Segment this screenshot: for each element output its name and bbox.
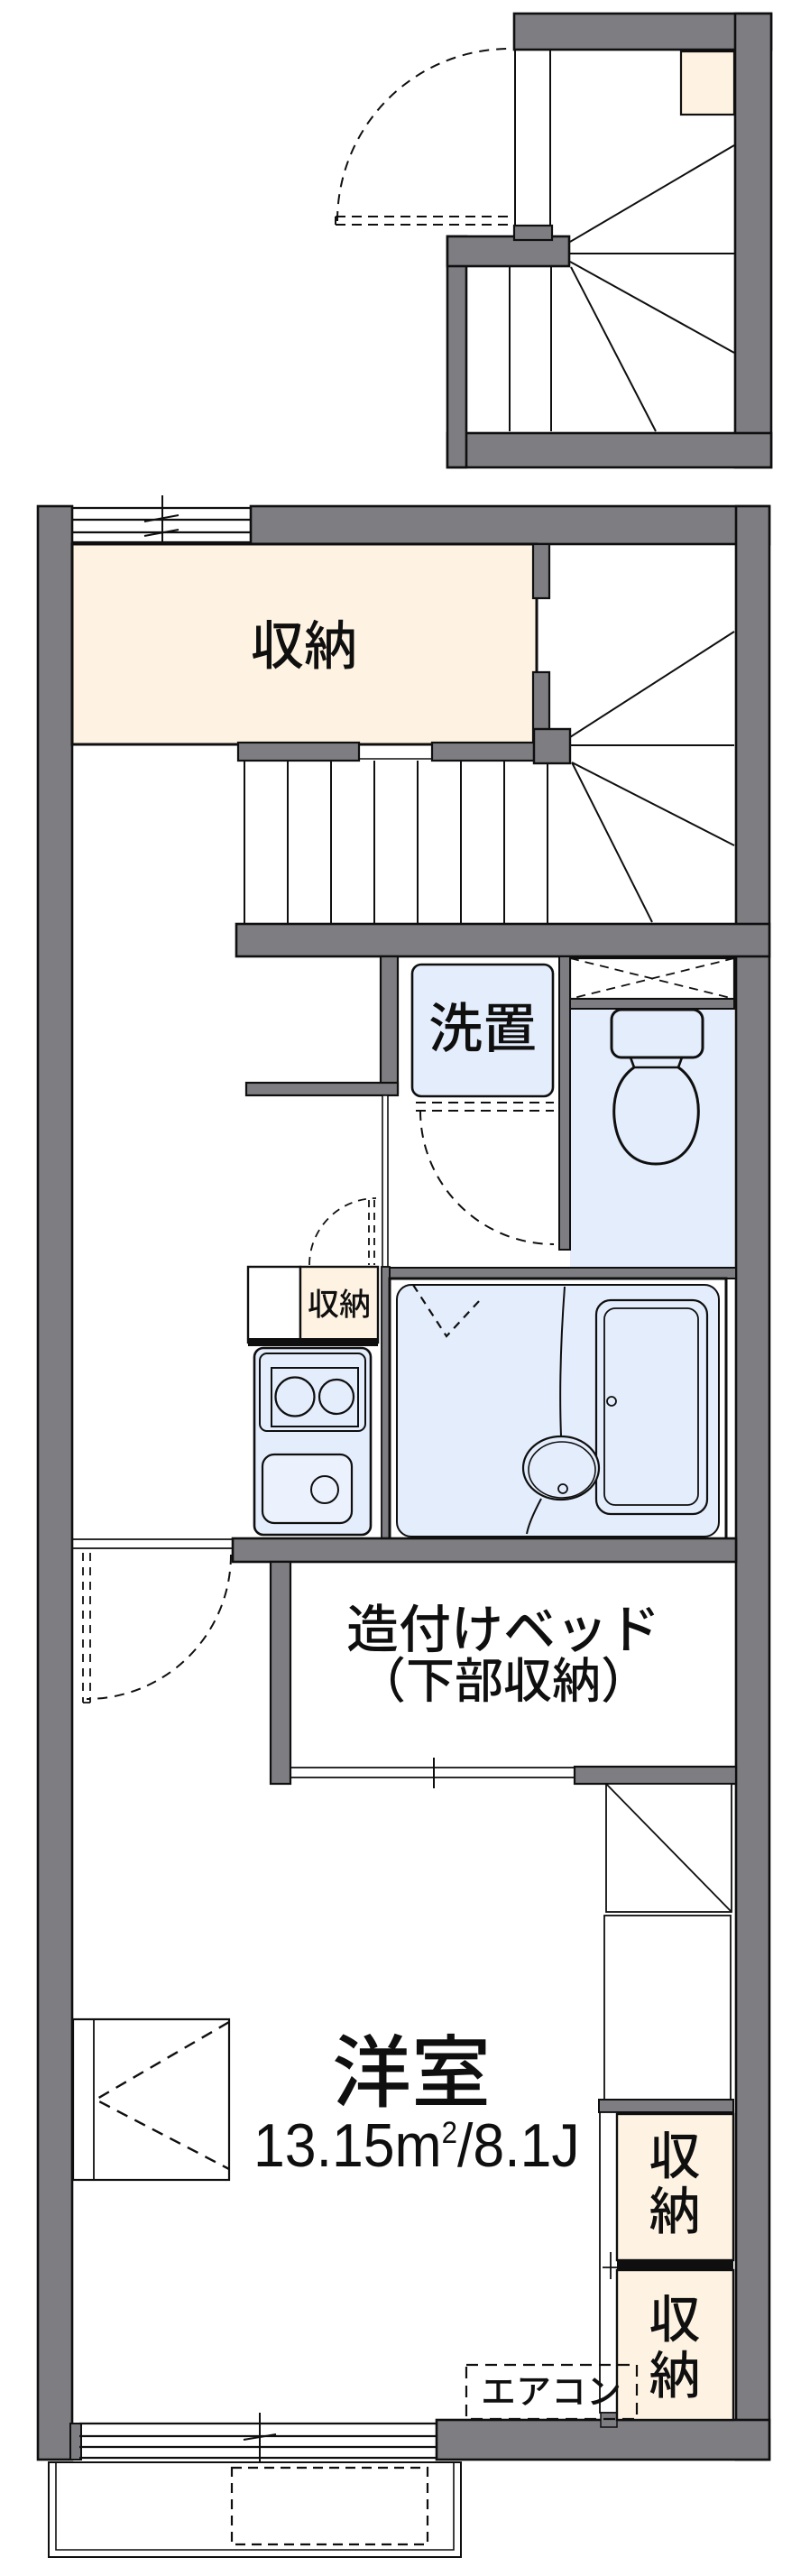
svg-text:13.15m2/8.1J: 13.15m2/8.1J [253,2111,580,2180]
